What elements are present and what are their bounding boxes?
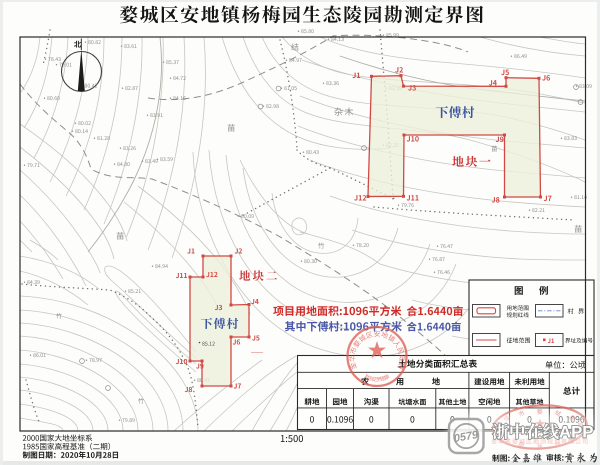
svg-text:APP: APP bbox=[559, 423, 594, 442]
